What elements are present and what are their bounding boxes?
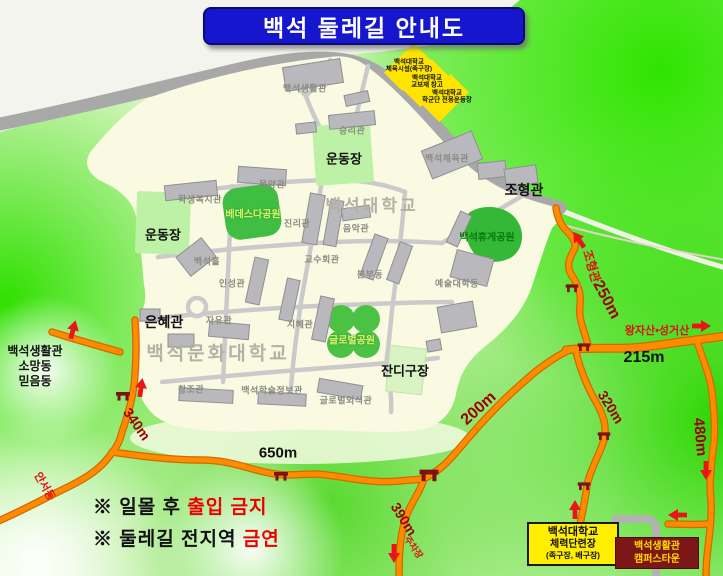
rule1-red: 출입 금지 bbox=[187, 497, 267, 518]
yellow-sign-1-line2: 체육시설(족구장) bbox=[386, 66, 432, 73]
rule2-black: ※ 둘레길 전지역 bbox=[93, 529, 243, 550]
map-title: 백석 둘레길 안내도 bbox=[203, 7, 525, 45]
label-dorm-line2: 소망동 bbox=[6, 359, 64, 374]
campustown-line2: 캠퍼스타운 bbox=[616, 553, 698, 566]
campustown-box: 백석생활관 캠퍼스타운 bbox=[615, 537, 699, 569]
map-graphics bbox=[0, 0, 723, 576]
yellow-sign-1: 백석대학교 체육시설(족구장) bbox=[386, 59, 432, 74]
rule2-red: 금연 bbox=[243, 529, 280, 550]
yellow-sign-3-line2: 학군단 전용운동장 bbox=[422, 97, 472, 104]
yellow-sign-2-line2: 교보재 창고 bbox=[411, 82, 443, 89]
label-dorm-line3: 믿음동 bbox=[6, 374, 64, 389]
fitness-facility-box: 백석대학교 체력단련장 (족구장, 배구장) bbox=[527, 522, 619, 566]
campustown-line1: 백석생활관 bbox=[616, 540, 698, 553]
fitness-line3: (족구장, 배구장) bbox=[529, 551, 617, 561]
yellow-sign-2: 백석대학교 교보재 창고 bbox=[411, 75, 443, 90]
trail-guide-map: 백석 둘레길 안내도 백석대학교 백석문화대학교 백석생활관 승리관 목양관 학… bbox=[0, 0, 723, 576]
rule-no-entry: ※ 일몰 후 출입 금지 bbox=[93, 492, 267, 519]
fitness-line1: 백석대학교 bbox=[529, 526, 617, 539]
label-dorm-block: 백석생활관 소망동 믿음동 bbox=[6, 344, 64, 389]
rule1-black: ※ 일몰 후 bbox=[93, 497, 187, 518]
fitness-line2: 체력단련장 bbox=[529, 539, 617, 551]
rule-no-smoking: ※ 둘레길 전지역 금연 bbox=[93, 524, 280, 551]
label-dorm-line1: 백석생활관 bbox=[6, 344, 64, 359]
yellow-sign-3: 백석대학교 학군단 전용운동장 bbox=[422, 90, 472, 105]
